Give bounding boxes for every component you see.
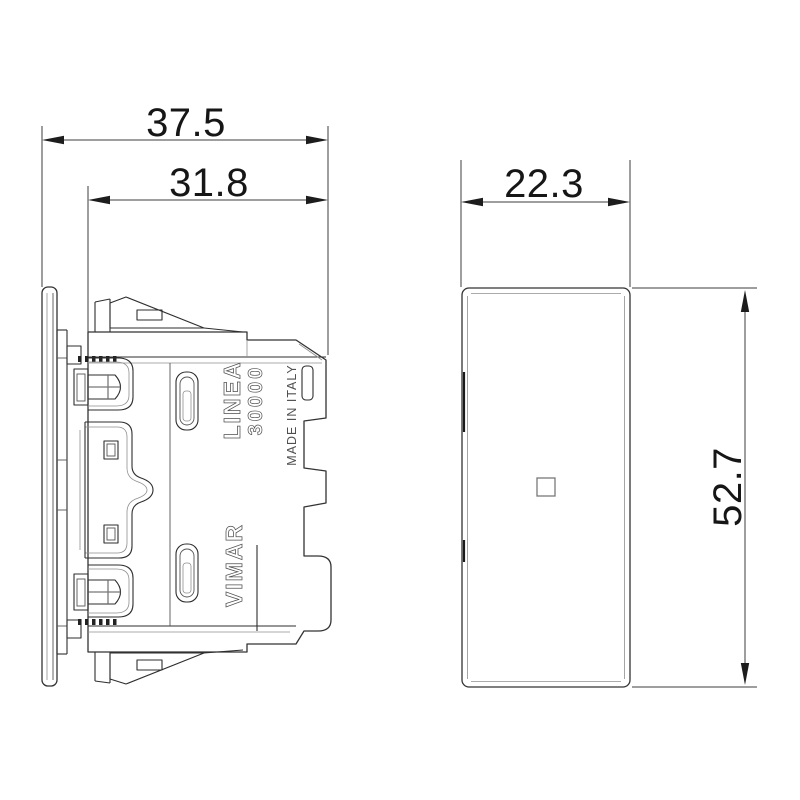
bottom-claw [95,650,243,684]
overall-depth-value: 37.5 [146,101,226,145]
technical-drawing-page: 37.5 31.8 22.3 52.7 [0,0,800,800]
indicator-window [537,478,555,496]
body-depth-value: 31.8 [169,161,249,205]
upper-slot [176,372,198,430]
dimension-front-height: 52.7 [632,288,757,687]
arrow-right-icon [306,196,328,204]
dimension-body-depth: 31.8 [88,161,328,364]
arrow-down-icon [741,663,749,685]
model-marking: 30000 [245,365,267,436]
series-marking: LINEA [219,361,245,440]
dimension-overall-depth: 37.5 [42,101,328,355]
arrow-right-icon [306,136,328,144]
arrow-left-icon [461,198,483,206]
arrow-left-icon [42,136,64,144]
front-height-value: 52.7 [706,447,750,527]
upper-terminal [74,358,133,410]
front-view [462,288,630,687]
arrow-up-icon [741,290,749,312]
dimension-front-width: 22.3 [461,160,630,287]
made-in-italy-marking: MADE IN ITALY [285,364,299,465]
arrow-left-icon [88,196,110,204]
arrow-right-icon [608,198,630,206]
rocker-plate [42,287,57,686]
side-slot [302,366,313,400]
pivot-panel [85,422,153,558]
top-claw [95,297,243,332]
side-view: LINEA 30000 MADE IN ITALY VIMAR [42,287,331,686]
lower-slot [176,544,198,602]
clamp-teeth [78,356,117,625]
lower-terminal [74,565,133,617]
rocker-face-outline [462,288,630,687]
front-width-value: 22.3 [504,162,584,206]
drawing-canvas: 37.5 31.8 22.3 52.7 [0,0,800,800]
brand-marking: VIMAR [221,523,247,607]
